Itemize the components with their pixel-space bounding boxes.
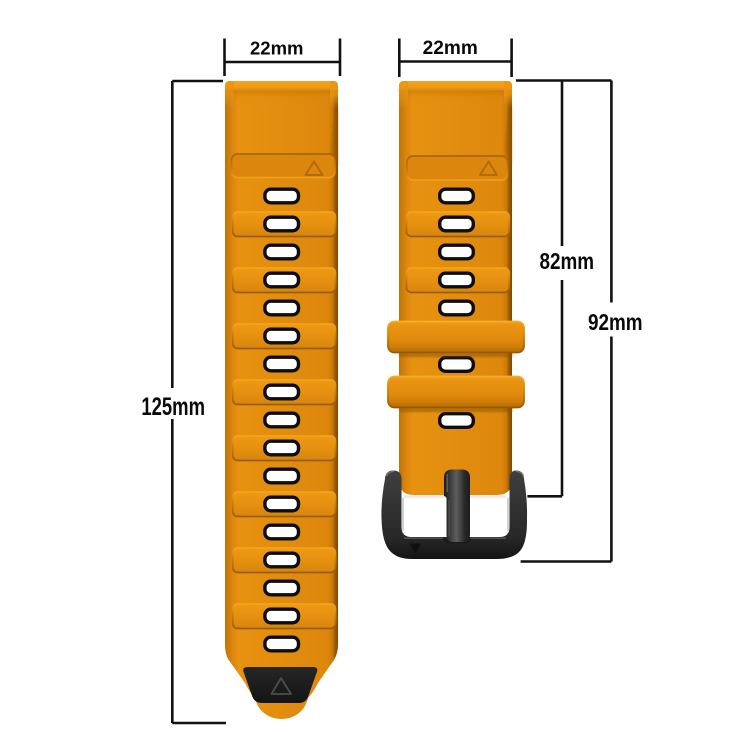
svg-text:82mm: 82mm (540, 248, 595, 274)
svg-text:125mm: 125mm (141, 394, 205, 421)
svg-text:22mm: 22mm (423, 38, 478, 59)
svg-text:22mm: 22mm (250, 39, 304, 59)
svg-text:92mm: 92mm (588, 309, 643, 335)
